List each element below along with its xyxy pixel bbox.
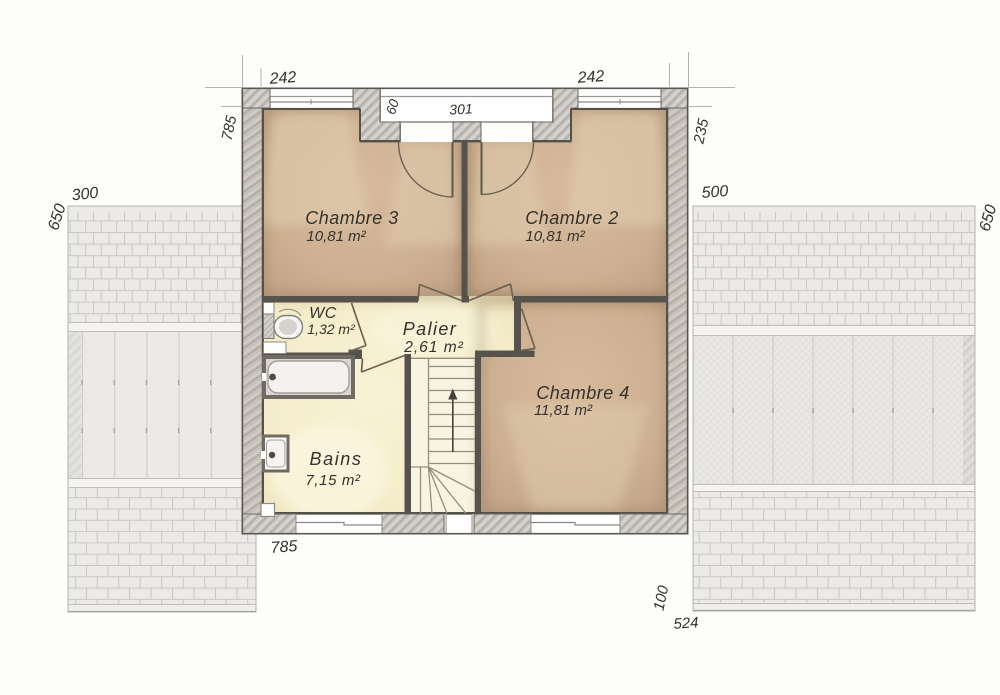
svg-text:785: 785	[270, 538, 298, 557]
svg-text:Bains: Bains	[309, 449, 362, 469]
svg-text:Palier: Palier	[403, 319, 457, 339]
svg-text:235: 235	[690, 116, 712, 146]
svg-text:11,81 m²: 11,81 m²	[534, 402, 593, 419]
svg-text:300: 300	[71, 185, 99, 205]
svg-text:785: 785	[219, 113, 241, 142]
svg-text:10,81 m²: 10,81 m²	[306, 228, 366, 245]
svg-text:Chambre 3: Chambre 3	[305, 208, 399, 228]
svg-text:Chambre 4: Chambre 4	[536, 383, 630, 403]
svg-text:524: 524	[673, 614, 699, 633]
svg-text:100: 100	[651, 583, 673, 612]
svg-text:500: 500	[701, 183, 729, 202]
svg-text:301: 301	[449, 100, 473, 117]
svg-text:7,15 m²: 7,15 m²	[305, 472, 360, 489]
svg-text:WC: WC	[309, 305, 337, 322]
svg-text:242: 242	[576, 68, 605, 87]
svg-text:1,32 m²: 1,32 m²	[307, 321, 356, 337]
svg-text:Chambre 2: Chambre 2	[525, 208, 619, 228]
svg-text:650: 650	[977, 203, 1000, 233]
svg-text:2,61 m²: 2,61 m²	[403, 339, 464, 356]
svg-text:242: 242	[268, 69, 297, 88]
svg-text:650: 650	[45, 202, 69, 233]
svg-text:10,81 m²: 10,81 m²	[525, 228, 585, 245]
